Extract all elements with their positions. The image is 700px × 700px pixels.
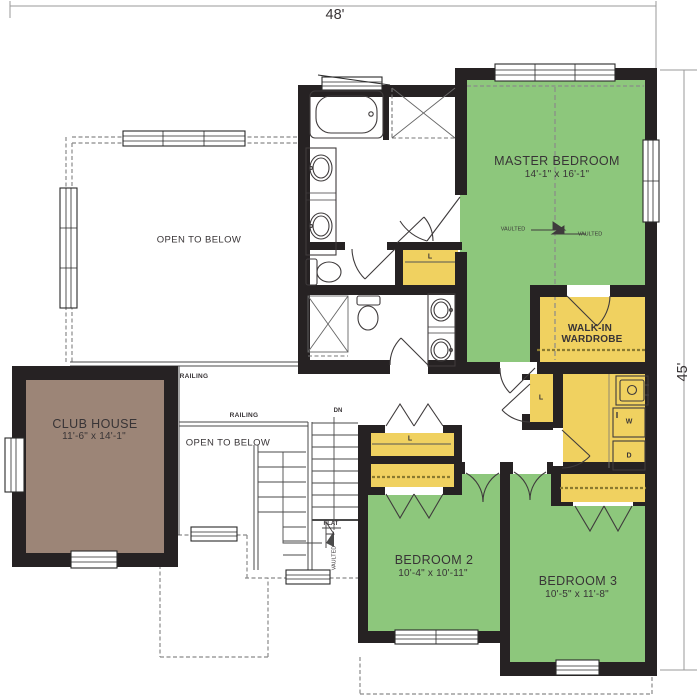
bathtub-icon	[310, 91, 383, 138]
washer-label: W	[626, 419, 633, 426]
window-lower-floor-b	[286, 570, 330, 584]
door-toilet-room	[352, 249, 395, 279]
club-house-size: 11'-6" x 14'-1"	[62, 432, 126, 442]
window-bedroom3	[556, 660, 599, 675]
wardrobe-label-line1: WALK-IN	[568, 324, 612, 334]
door-master-a	[400, 197, 460, 241]
toilet-icon-bath2	[357, 296, 380, 330]
railing-label-2: RAILING	[230, 413, 259, 420]
window-club-bottom	[71, 551, 117, 568]
window-club-left	[5, 438, 24, 492]
bedroom-3-size: 10'-5" x 11'-8"	[545, 590, 609, 600]
window-lower-floor-a	[191, 527, 237, 541]
window-master-right	[643, 140, 659, 222]
vaulted-label-left: VAULTED	[501, 227, 526, 233]
railing-label-1: RAILING	[180, 374, 209, 381]
club-house-fill	[20, 374, 170, 559]
window-open-below-left	[60, 188, 77, 308]
stairs-dn-label: DN	[334, 408, 343, 414]
linen-closet-bath-fill	[402, 244, 458, 290]
master-bedroom-label: MASTER BEDROOM	[494, 155, 620, 168]
dimension-width-label: 48'	[326, 8, 345, 23]
linen-label-bath: L	[428, 254, 432, 261]
laundry-fill	[553, 366, 650, 472]
flat-label: FLAT	[324, 521, 339, 527]
master-bedroom-size: 14'-1" x 16'-1"	[525, 170, 590, 180]
wardrobe-label-line2: WARDROBE	[561, 335, 622, 345]
bedroom-2-label: BEDROOM 2	[395, 554, 474, 567]
linen-label-hall: L	[539, 395, 543, 402]
floor-plan: 48' 45' MASTER BEDROOM 14'-1" x 16'-1" W…	[0, 0, 700, 700]
vanity-double-sink-icon	[306, 148, 336, 255]
dryer-label: D	[626, 453, 631, 460]
bifold-closet-hall	[386, 404, 443, 426]
bedroom-3-label: BEDROOM 3	[539, 575, 618, 588]
vaulted-label-stairs: VAULTED	[332, 546, 338, 571]
shower-icon-bath2	[308, 296, 348, 356]
club-house-label: CLUB HOUSE	[52, 418, 137, 431]
vanity-double-sink-icon-bath2	[428, 294, 455, 366]
window-open-below-top	[123, 131, 245, 146]
open-to-below-upper-label: OPEN TO BELOW	[157, 235, 242, 245]
open-to-below-stairs-label: OPEN TO BELOW	[186, 438, 271, 448]
linen-label-closet: L	[408, 436, 412, 443]
vaulted-label-right: VAULTED	[578, 232, 603, 238]
window-master-top	[495, 64, 615, 81]
window-bath-top	[318, 75, 390, 90]
door-master-b	[397, 217, 433, 243]
toilet-icon-master-bath	[306, 259, 341, 285]
bedroom-2-size: 10'-4" x 10'-11"	[398, 569, 468, 579]
dimension-height-label: 45'	[676, 363, 691, 382]
window-bedroom2	[395, 630, 478, 644]
